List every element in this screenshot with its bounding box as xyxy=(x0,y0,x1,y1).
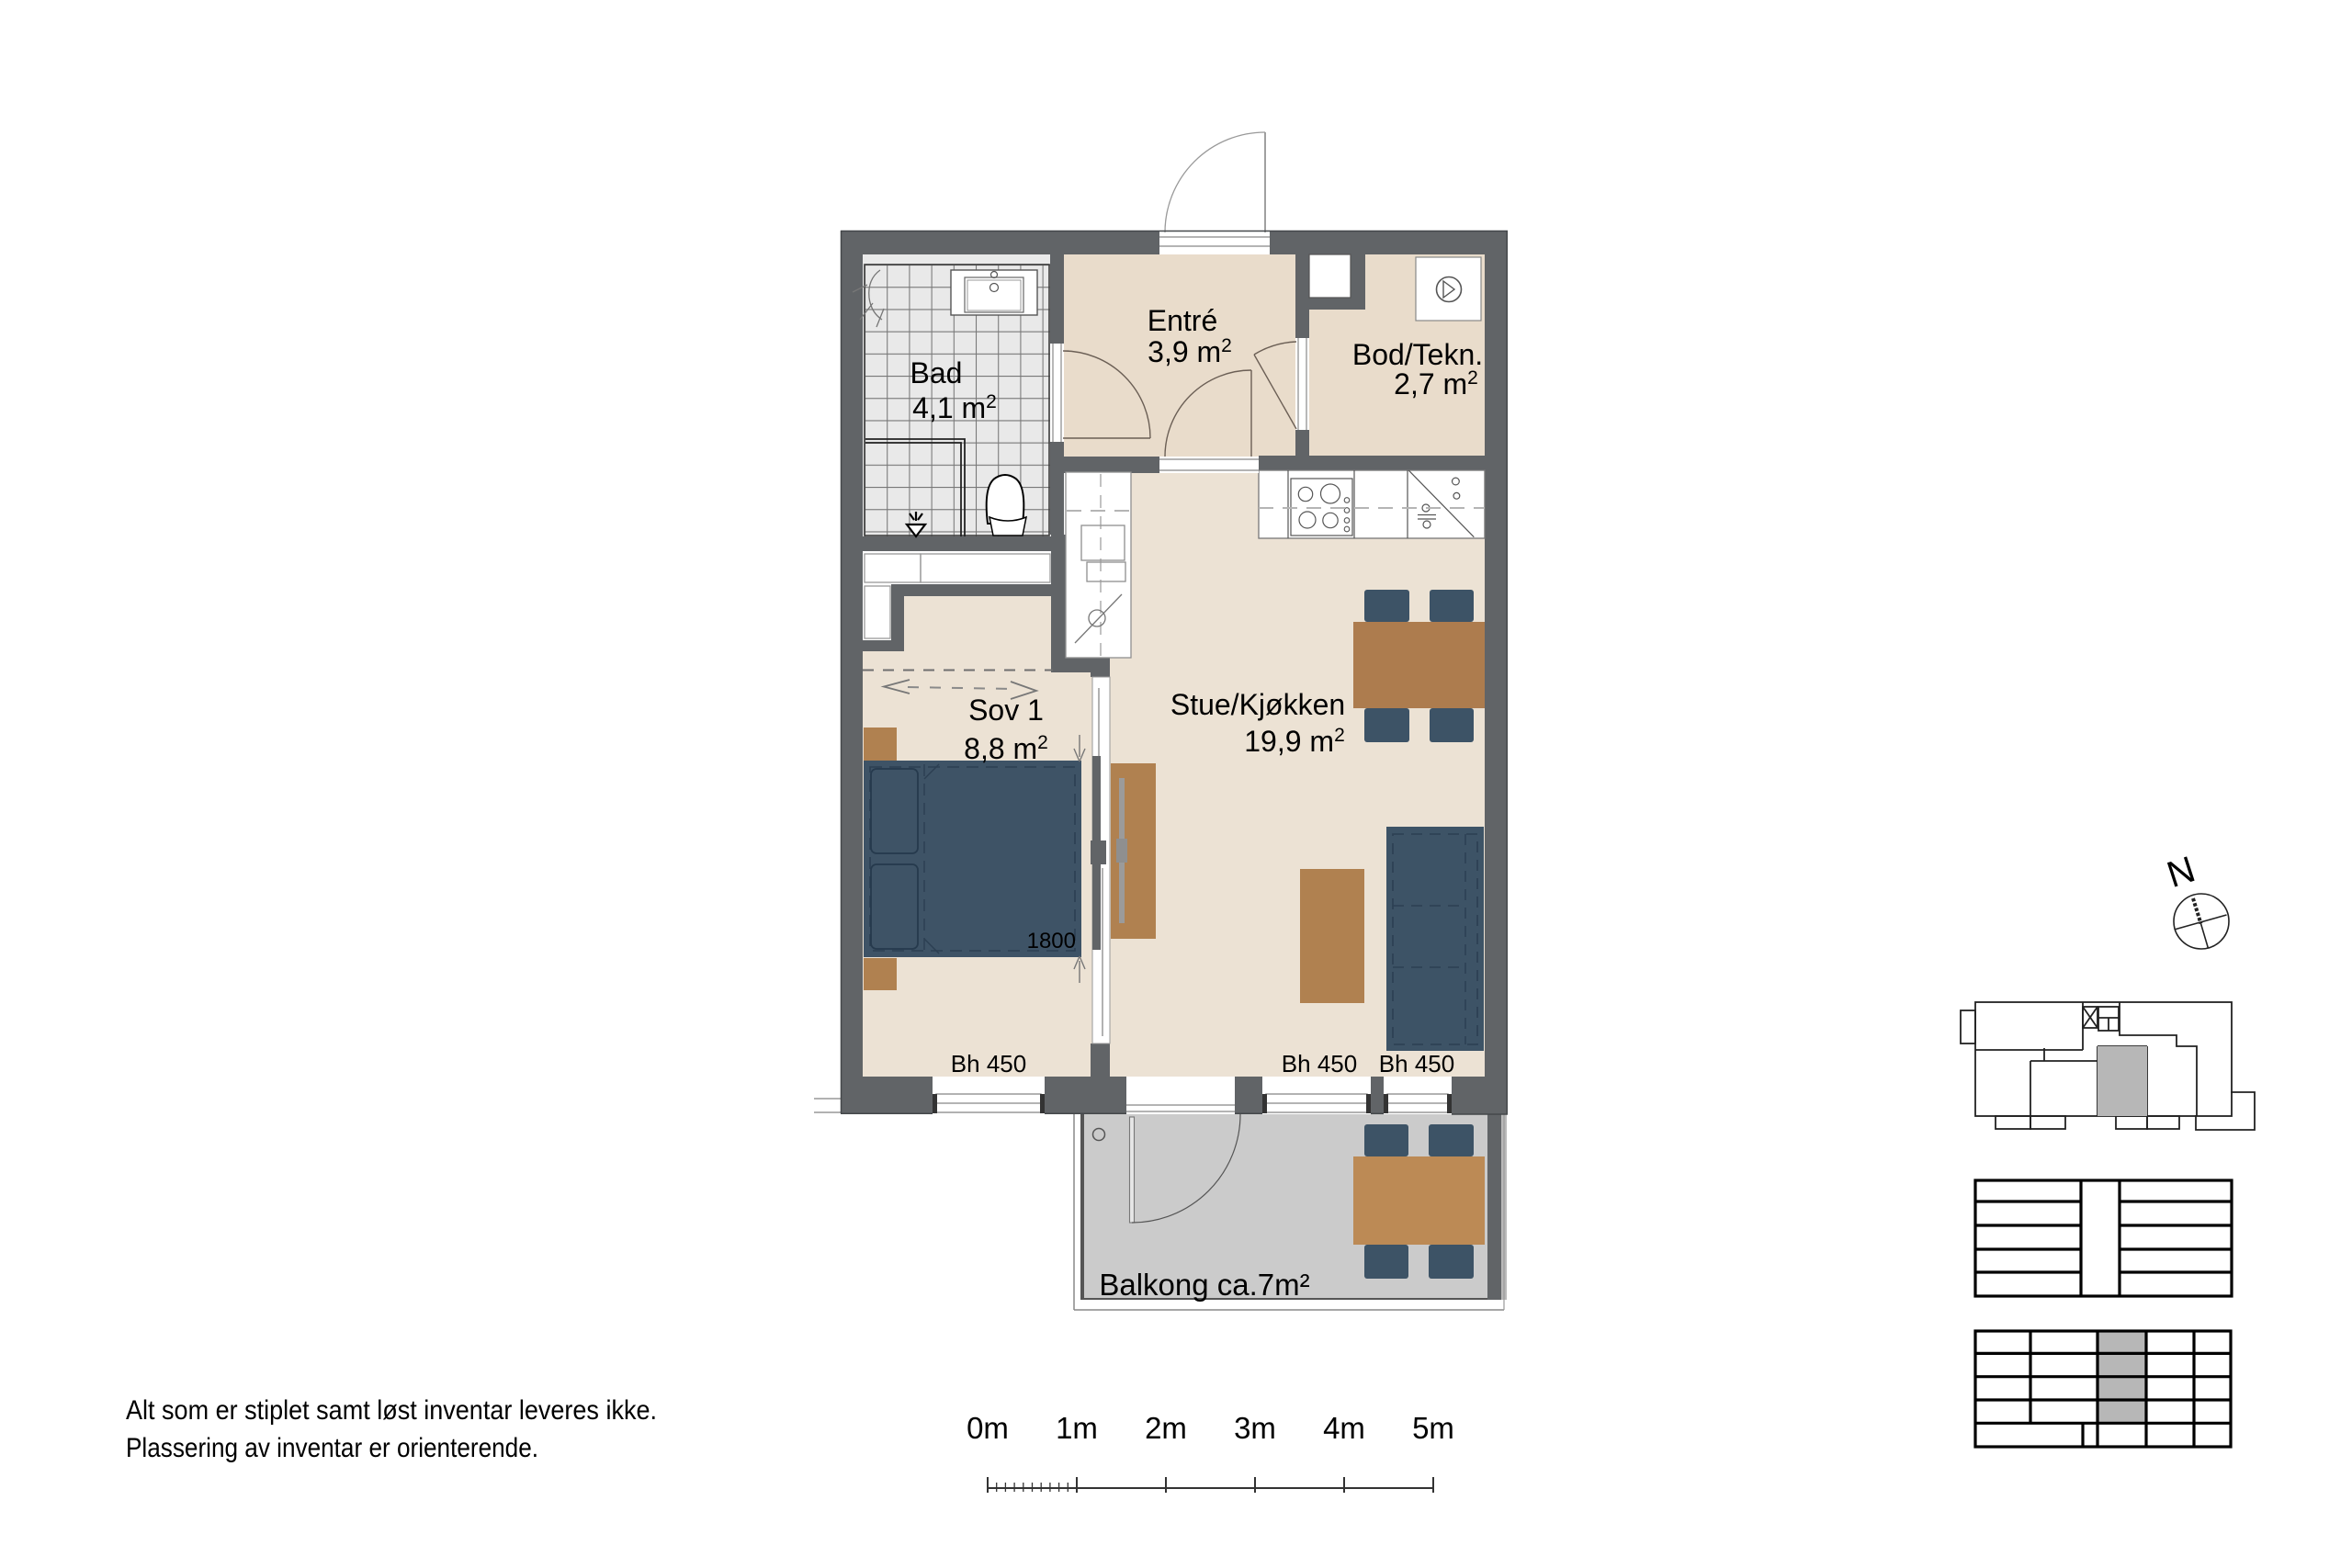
svg-text:Plassering av inventar er orie: Plassering av inventar er orienterende. xyxy=(126,1433,538,1463)
svg-text:19,9 m2: 19,9 m2 xyxy=(1244,725,1345,758)
svg-text:Balkong ca.7m²: Balkong ca.7m² xyxy=(1099,1268,1309,1302)
svg-text:Entré: Entré xyxy=(1148,304,1217,337)
svg-text:2,7 m2: 2,7 m2 xyxy=(1394,367,1478,400)
svg-text:1800: 1800 xyxy=(1027,929,1076,953)
svg-text:1m: 1m xyxy=(1056,1411,1098,1445)
svg-text:Bh 450: Bh 450 xyxy=(1282,1050,1357,1077)
svg-text:4,1 m2: 4,1 m2 xyxy=(912,391,997,424)
svg-text:2m: 2m xyxy=(1145,1411,1187,1445)
svg-text:Bod/Tekn.: Bod/Tekn. xyxy=(1352,338,1483,371)
svg-text:5m: 5m xyxy=(1412,1411,1454,1445)
svg-text:Bh 450: Bh 450 xyxy=(1379,1050,1454,1077)
svg-text:3,9 m2: 3,9 m2 xyxy=(1148,335,1232,368)
svg-text:Bh 450: Bh 450 xyxy=(951,1050,1026,1077)
svg-text:0m: 0m xyxy=(967,1411,1009,1445)
svg-text:Bad: Bad xyxy=(910,356,963,389)
svg-text:8,8 m2: 8,8 m2 xyxy=(964,732,1048,765)
svg-text:4m: 4m xyxy=(1323,1411,1365,1445)
svg-text:Sov 1: Sov 1 xyxy=(968,694,1044,727)
svg-text:Alt som er stiplet samt løst i: Alt som er stiplet samt løst inventar le… xyxy=(126,1395,657,1426)
svg-text:3m: 3m xyxy=(1234,1411,1276,1445)
svg-text:Stue/Kjøkken: Stue/Kjøkken xyxy=(1170,688,1345,721)
